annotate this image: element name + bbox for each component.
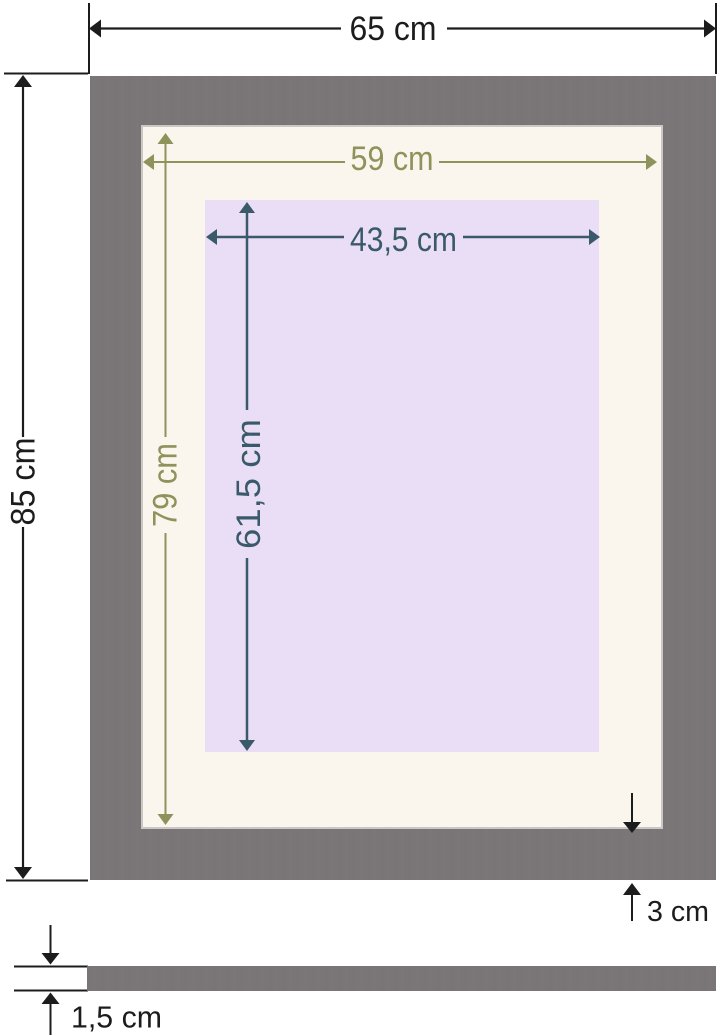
svg-text:43,5 cm: 43,5 cm	[350, 221, 457, 259]
svg-text:1,5 cm: 1,5 cm	[71, 1000, 162, 1035]
svg-text:3 cm: 3 cm	[647, 896, 709, 928]
svg-text:61,5 cm: 61,5 cm	[230, 419, 268, 549]
svg-text:85 cm: 85 cm	[5, 438, 43, 526]
svg-text:79 cm: 79 cm	[147, 443, 185, 527]
svg-text:65 cm: 65 cm	[350, 10, 437, 48]
svg-text:59 cm: 59 cm	[351, 140, 434, 178]
